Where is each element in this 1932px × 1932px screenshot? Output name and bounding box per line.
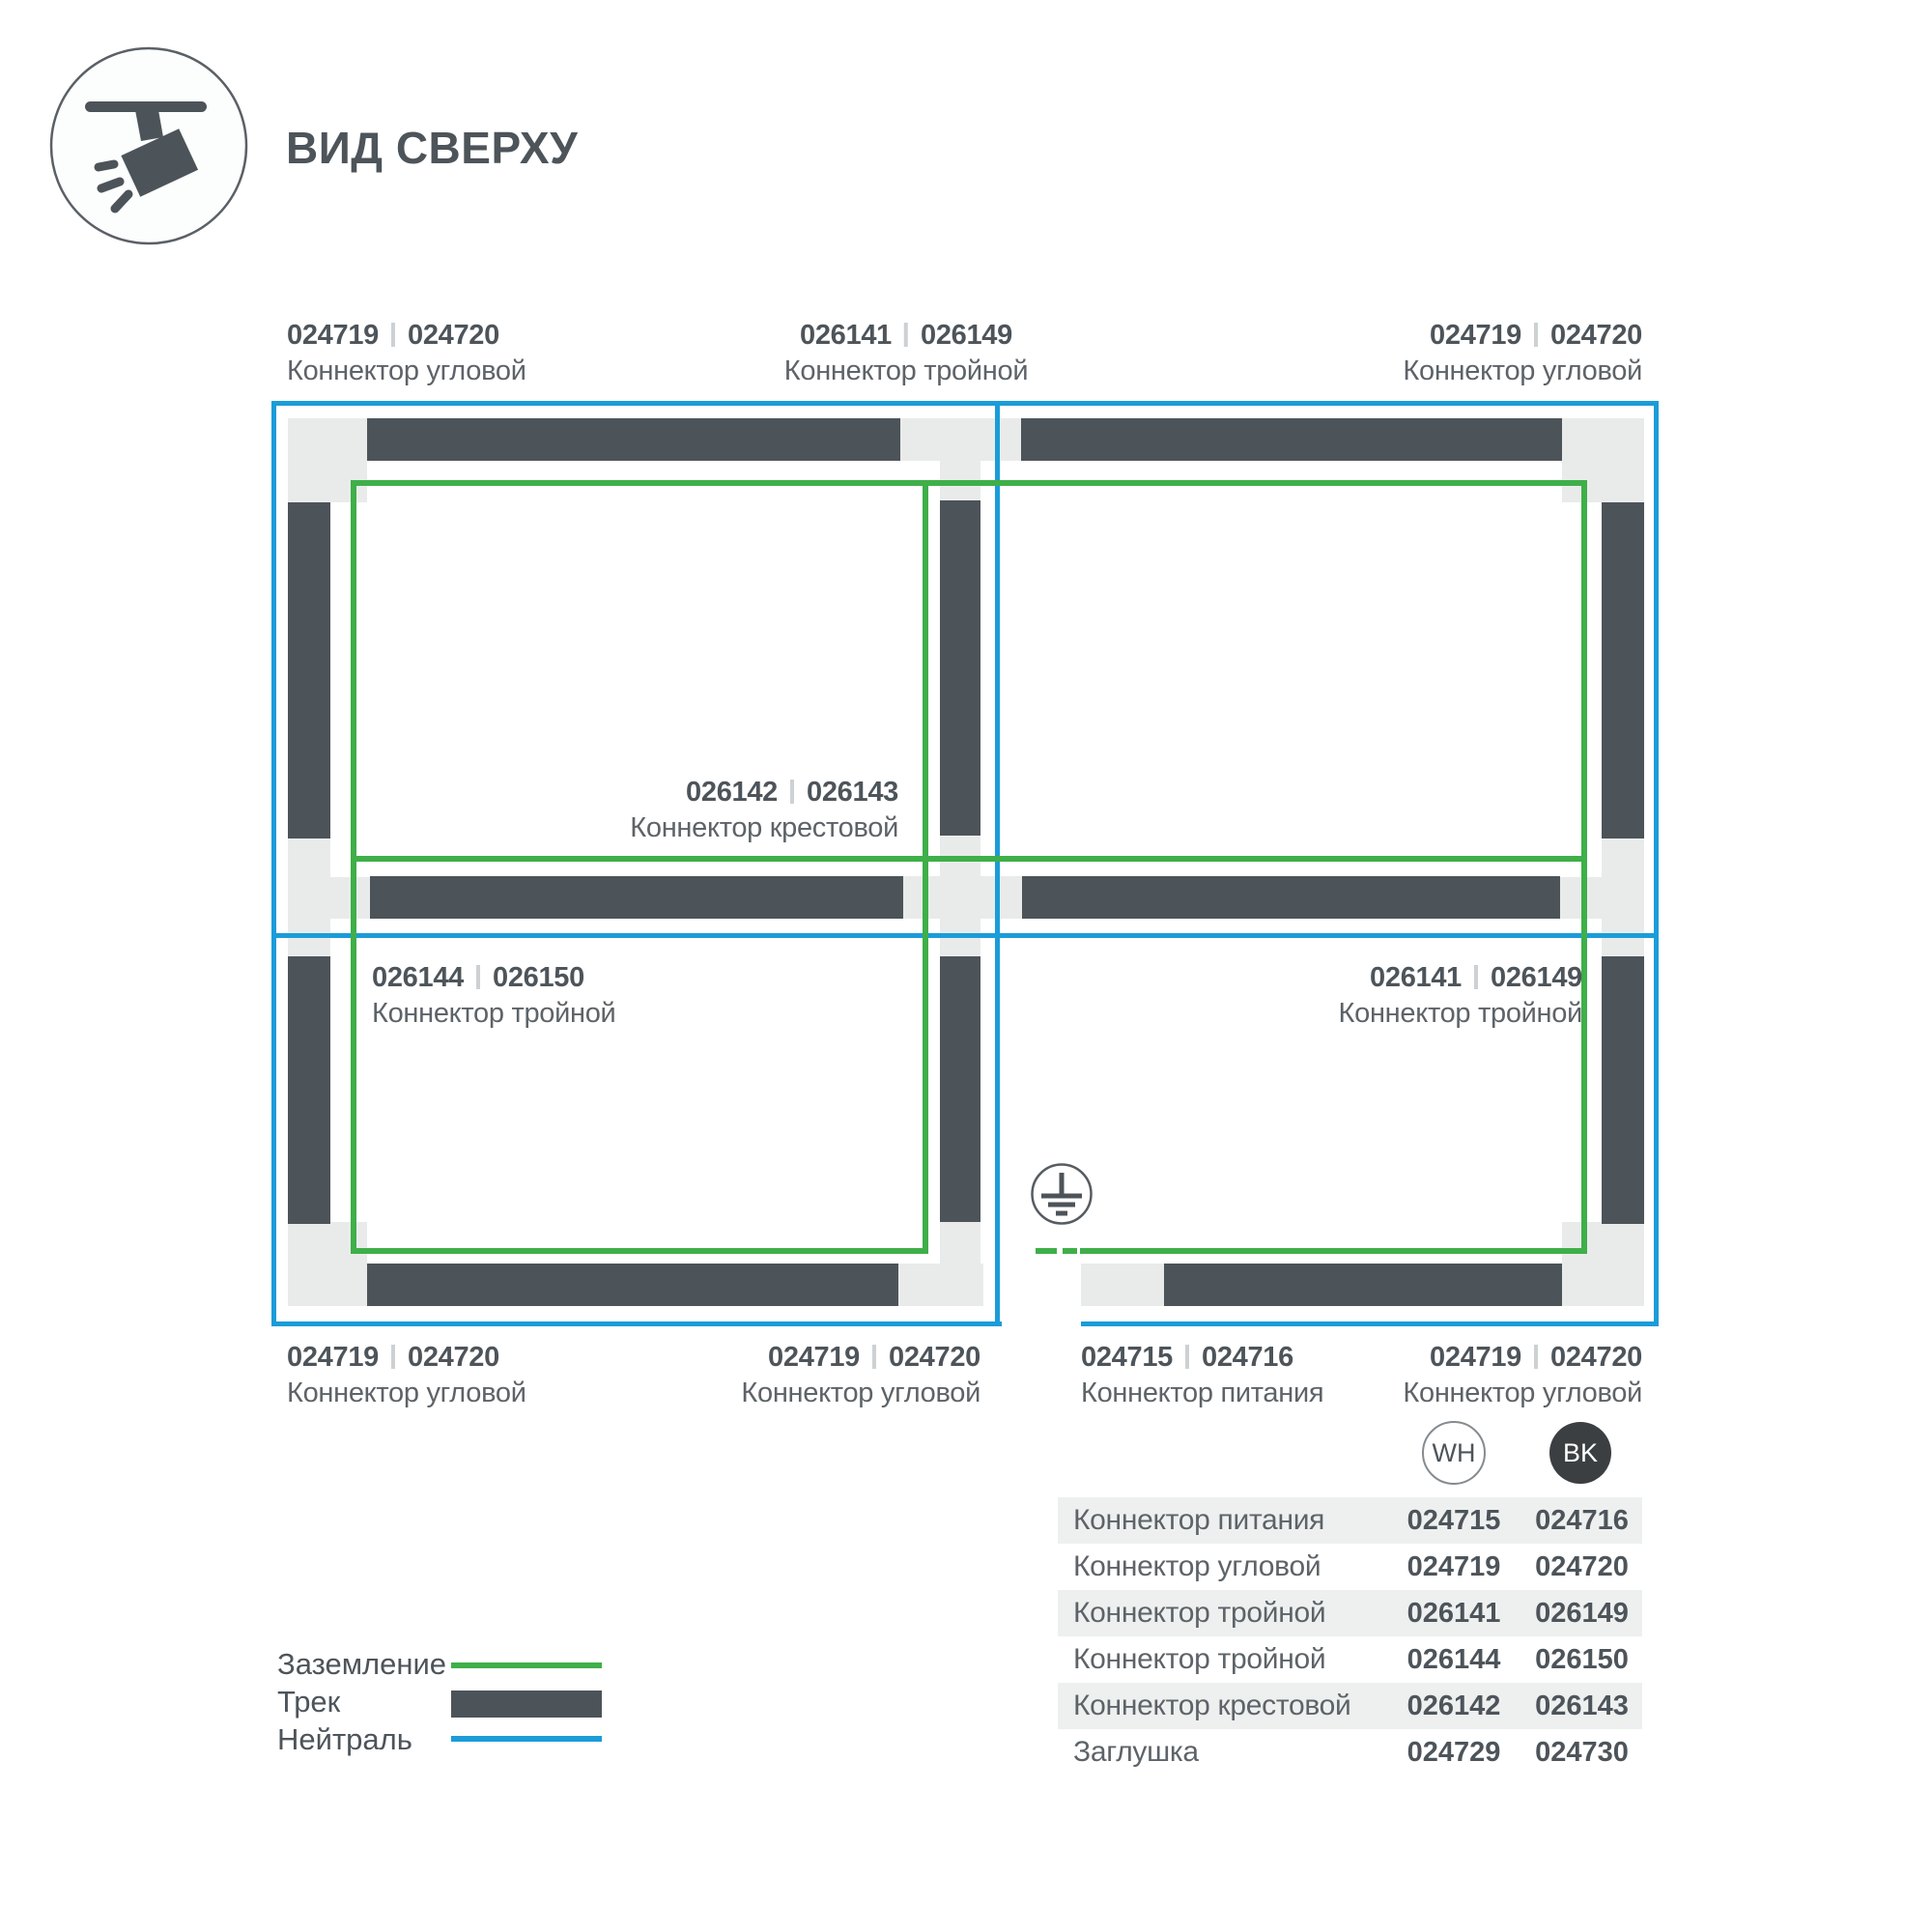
part-name: Коннектор тройной: [372, 999, 615, 1028]
part-name: Коннектор питания: [1058, 1504, 1386, 1537]
part-code-bk: 024730: [1521, 1737, 1642, 1769]
track-segment: [940, 500, 980, 836]
neutral-line: [271, 401, 1659, 406]
ground-line: [351, 480, 1587, 486]
part-codes: 026141026149: [784, 321, 1028, 350]
page-title: ВИД СВЕРХУ: [286, 122, 578, 174]
code-divider: [391, 323, 395, 347]
part-label: 024715024716 Коннектор питания: [1081, 1343, 1323, 1407]
track-segment: [288, 502, 330, 838]
legend-label-neutral: Нейтраль: [277, 1724, 412, 1754]
protective-earth-icon: [1030, 1162, 1094, 1226]
part-name: Коннектор тройной: [1058, 1643, 1386, 1676]
code-divider: [1185, 1345, 1189, 1369]
part-codes: 026144026150: [372, 963, 615, 992]
part-name: Коннектор крестовой: [630, 813, 898, 842]
legend-swatch-ground-line: [451, 1662, 602, 1668]
catalog-page: ВИД СВЕРХУ: [0, 0, 1932, 1932]
table-row: Коннектор крестовой 026142 026143: [1058, 1683, 1642, 1729]
white-variant-badge: WH: [1422, 1421, 1486, 1485]
legend-swatch-neutral-line: [451, 1736, 602, 1742]
part-name: Коннектор угловой: [741, 1378, 980, 1407]
track-segment: [1022, 876, 1560, 919]
code-divider: [872, 1345, 876, 1369]
corner-connector-block: [940, 1222, 980, 1264]
ground-line-dash: [1036, 1248, 1057, 1254]
part-code-wh: 024719: [1386, 1551, 1521, 1583]
part-name: Коннектор угловой: [1403, 356, 1642, 385]
part-label: 024719024720 Коннектор угловой: [287, 321, 526, 385]
code-divider: [1534, 1345, 1538, 1369]
table-row: Заглушка 024729 024730: [1058, 1729, 1642, 1776]
ground-line: [351, 480, 356, 1254]
ground-line: [923, 480, 928, 1254]
part-label: 026141026149 Коннектор тройной: [1339, 963, 1582, 1028]
neutral-line: [1081, 1321, 1659, 1326]
part-label: 024719024720 Коннектор угловой: [287, 1343, 526, 1407]
part-codes: 024719024720: [1403, 1343, 1642, 1372]
track-segment: [940, 956, 980, 1222]
tee-connector-block: [1602, 838, 1644, 956]
corner-connector-block: [898, 1264, 983, 1306]
neutral-line: [271, 401, 276, 1326]
part-codes: 026142026143: [630, 778, 898, 807]
part-code-wh: 024715: [1386, 1505, 1521, 1537]
track-segment: [367, 418, 900, 461]
part-codes: 024719024720: [287, 1343, 526, 1372]
track-segment: [1021, 418, 1562, 461]
corner-connector-block: [1562, 418, 1644, 502]
neutral-line: [271, 933, 1654, 938]
part-label: 026141026149 Коннектор тройной: [784, 321, 1028, 385]
track-segment: [1602, 956, 1644, 1224]
part-code-wh: 026142: [1386, 1690, 1521, 1722]
black-variant-badge: BK: [1549, 1422, 1611, 1484]
part-codes: 024719024720: [741, 1343, 980, 1372]
track-segment: [1164, 1264, 1562, 1306]
part-label: 024719024720 Коннектор угловой: [741, 1343, 980, 1407]
code-divider: [1534, 323, 1538, 347]
code-divider: [476, 965, 480, 989]
part-code-wh: 026141: [1386, 1598, 1521, 1630]
part-code-bk: 026150: [1521, 1644, 1642, 1676]
part-label: 024719024720 Коннектор угловой: [1403, 321, 1642, 385]
part-code-bk: 024716: [1521, 1505, 1642, 1537]
part-codes: 026141026149: [1339, 963, 1582, 992]
part-label: 026144026150 Коннектор тройной: [372, 963, 615, 1028]
part-name: Коннектор тройной: [1058, 1597, 1386, 1630]
table-row: Коннектор тройной 026144 026150: [1058, 1636, 1642, 1683]
part-name: Коннектор тройной: [784, 356, 1028, 385]
cross-connector-block: [940, 836, 980, 956]
track-segment: [370, 876, 903, 919]
code-divider: [1474, 965, 1478, 989]
legend-label-ground: Заземление: [277, 1649, 446, 1679]
part-name: Коннектор крестовой: [1058, 1690, 1386, 1722]
part-code-wh: 026144: [1386, 1644, 1521, 1676]
track-segment: [367, 1264, 898, 1306]
table-row: Коннектор питания 024715 024716: [1058, 1497, 1642, 1544]
part-code-bk: 024720: [1521, 1551, 1642, 1583]
part-codes: 024715024716: [1081, 1343, 1323, 1372]
ground-line: [1581, 480, 1587, 1254]
ground-line: [351, 856, 1587, 862]
track-segment: [1602, 502, 1644, 838]
part-code-wh: 024729: [1386, 1737, 1521, 1769]
table-row: Коннектор тройной 026141 026149: [1058, 1590, 1642, 1636]
part-name: Коннектор тройной: [1339, 999, 1582, 1028]
part-label: 024719024720 Коннектор угловой: [1403, 1343, 1642, 1407]
part-code-bk: 026143: [1521, 1690, 1642, 1722]
code-divider: [790, 780, 794, 804]
tee-connector-block: [900, 418, 1021, 461]
part-label: 026142026143 Коннектор крестовой: [630, 778, 898, 842]
table-row: Коннектор угловой 024719 024720: [1058, 1544, 1642, 1590]
tee-connector-block: [288, 838, 330, 956]
part-name: Заглушка: [1058, 1736, 1386, 1769]
neutral-line: [271, 1321, 1002, 1326]
legend-swatch-track-bar: [451, 1690, 602, 1718]
code-divider: [904, 323, 908, 347]
neutral-line: [1654, 401, 1659, 1326]
part-name: Коннектор угловой: [1058, 1550, 1386, 1583]
legend-label-track: Трек: [277, 1687, 340, 1717]
part-code-bk: 026149: [1521, 1598, 1642, 1630]
part-codes: 024719024720: [287, 321, 526, 350]
power-connector-block: [1081, 1264, 1164, 1306]
part-name: Коннектор угловой: [287, 1378, 526, 1407]
code-divider: [391, 1345, 395, 1369]
track-spotlight-icon: [46, 43, 251, 248]
corner-connector-block: [1562, 1222, 1644, 1306]
ground-line: [1080, 1248, 1587, 1254]
track-segment: [288, 956, 330, 1224]
part-codes: 024719024720: [1403, 321, 1642, 350]
part-name: Коннектор питания: [1081, 1378, 1323, 1407]
part-name: Коннектор угловой: [1403, 1378, 1642, 1407]
part-name: Коннектор угловой: [287, 356, 526, 385]
ground-line-dash: [1063, 1248, 1077, 1254]
ground-line: [351, 1248, 928, 1254]
neutral-line: [995, 401, 1000, 1324]
